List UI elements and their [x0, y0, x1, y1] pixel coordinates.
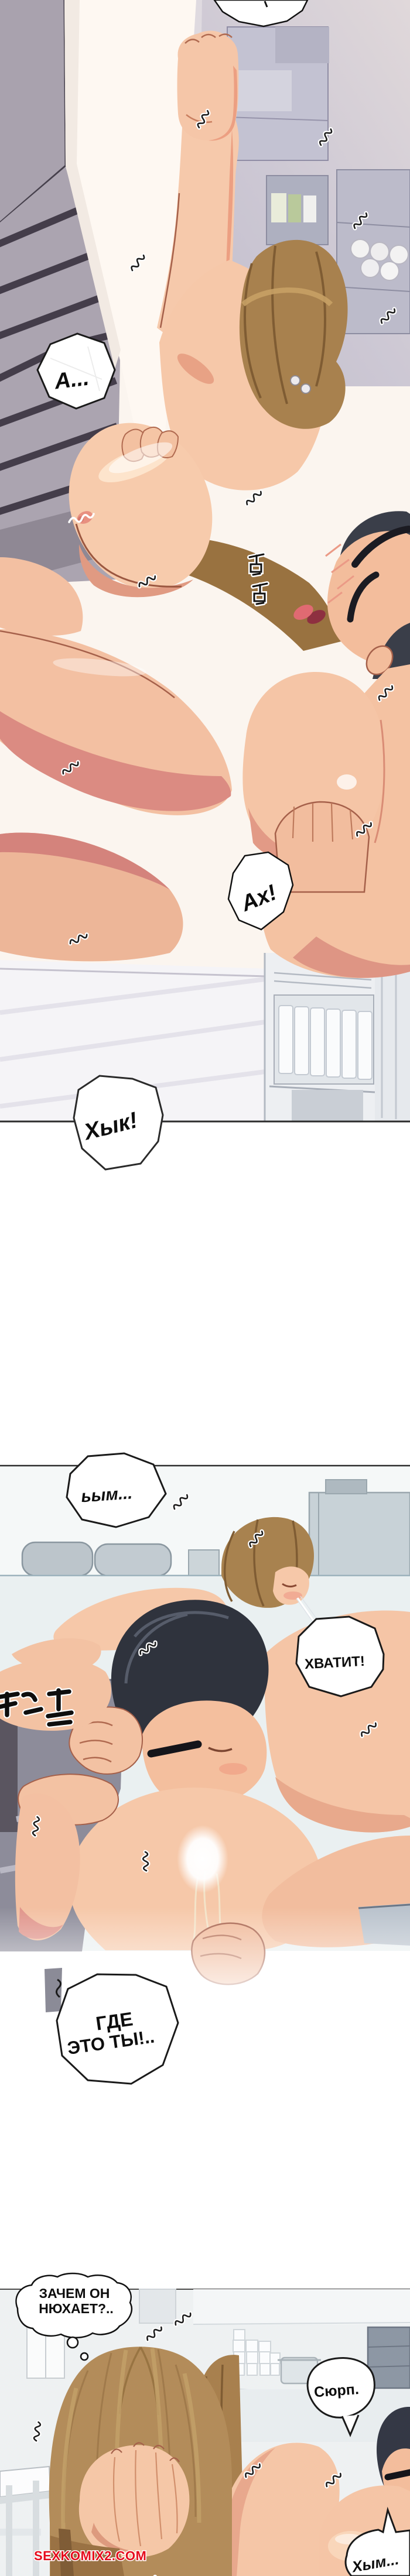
svg-text:SEXKOMIX2.COM: SEXKOMIX2.COM — [34, 2548, 146, 2563]
svg-text:ЗАЧЕМ ОН: ЗАЧЕМ ОН — [39, 2286, 110, 2301]
svg-text:А...: А... — [53, 366, 91, 395]
svg-text:Сюрп.: Сюрп. — [313, 2381, 360, 2400]
svg-text:ХВАТИТ!: ХВАТИТ! — [304, 1654, 365, 1672]
svg-text:НЮХАЕТ?..: НЮХАЕТ?.. — [39, 2301, 114, 2316]
svg-text:ьым...: ьым... — [80, 1484, 133, 1506]
